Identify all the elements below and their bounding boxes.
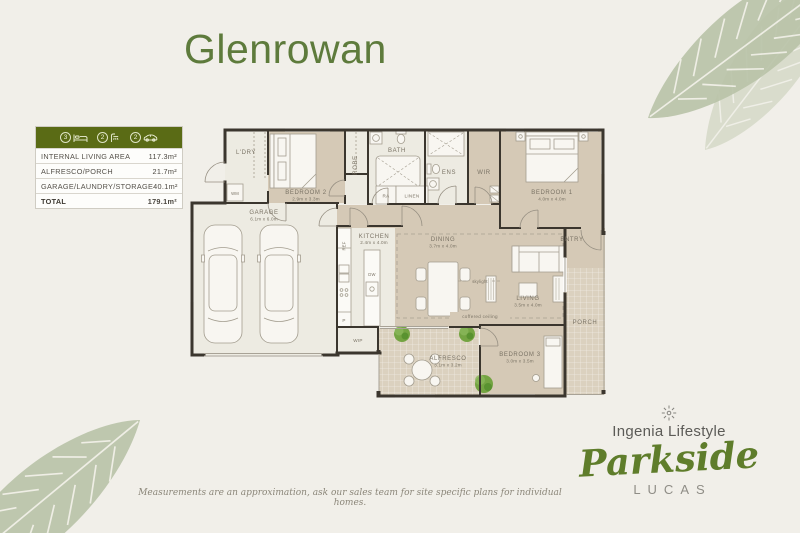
spec-value: 40.1m² bbox=[153, 182, 178, 191]
brand-community: Parkside bbox=[563, 435, 775, 485]
car-2 bbox=[258, 225, 301, 343]
label-bedroom3: BEDROOM 3 bbox=[499, 352, 540, 358]
dims-dining: 3.7m x 4.0m bbox=[429, 244, 456, 249]
shower-icon bbox=[110, 133, 121, 143]
label-entry: ENTRY bbox=[560, 237, 583, 243]
spec-value: 21.7m² bbox=[152, 167, 177, 176]
label-robe: ROBE bbox=[353, 155, 359, 174]
shower-count: 2 bbox=[97, 132, 108, 143]
dims-alfresco: 3.1m x 3.2m bbox=[434, 363, 461, 368]
label-ref: REF bbox=[342, 241, 347, 250]
bed-count: 3 bbox=[60, 132, 71, 143]
spec-row-alfresco-porch: ALFRESCO/PORCH 21.7m² bbox=[36, 163, 182, 178]
label-linen: LINEN bbox=[404, 194, 419, 199]
dims-bedroom3: 3.0m x 3.5m bbox=[506, 359, 533, 364]
page-title: Glenrowan bbox=[184, 26, 387, 73]
label-living: LIVING bbox=[516, 296, 539, 302]
label-ens: ENS bbox=[442, 170, 456, 176]
label-bedroom2: BEDROOM 2 bbox=[285, 190, 326, 196]
label-wm: WM bbox=[231, 191, 239, 196]
label-garage: GARAGE bbox=[249, 210, 278, 216]
plant-alfresco-right bbox=[459, 326, 475, 342]
spec-table: 3 2 2 bbox=[35, 126, 183, 209]
sofa bbox=[512, 246, 566, 272]
dims-kitchen: 2.4m x 4.0m bbox=[360, 240, 387, 245]
spec-label: GARAGE/LAUNDRY/STORAGE bbox=[41, 182, 153, 191]
spec-row-internal-living: INTERNAL LIVING AREA 117.3m² bbox=[36, 148, 182, 163]
spec-row-garage-laundry: GARAGE/LAUNDRY/STORAGE 40.1m² bbox=[36, 178, 182, 193]
kitchen-island bbox=[364, 250, 380, 326]
label-bath: BATH bbox=[388, 148, 406, 154]
spec-value: 117.3m² bbox=[149, 152, 177, 161]
label-porch: PORCH bbox=[573, 320, 598, 326]
dims-living: 3.5m x 4.0m bbox=[514, 303, 541, 308]
bed-bedroom2 bbox=[270, 134, 316, 188]
spec-row-total: TOTAL 179.1m² bbox=[36, 193, 182, 208]
dims-bedroom2: 2.9m x 3.3m bbox=[292, 197, 319, 202]
label-dw: DW bbox=[368, 272, 375, 277]
spec-value: 179.1m² bbox=[148, 197, 177, 206]
bed-icon bbox=[73, 133, 88, 143]
sun-icon bbox=[659, 404, 679, 422]
spec-label: TOTAL bbox=[41, 197, 66, 206]
bed-bedroom1 bbox=[516, 132, 588, 182]
label-wir: WIR bbox=[477, 170, 491, 176]
label-bedroom1: BEDROOM 1 bbox=[531, 190, 572, 196]
car-1 bbox=[202, 225, 245, 343]
dims-garage: 6.1m x 6.0m bbox=[250, 217, 277, 222]
label-pantry: P bbox=[342, 318, 345, 323]
spec-table-header: 3 2 2 bbox=[36, 127, 182, 148]
label-ra: RA bbox=[383, 194, 391, 199]
spec-label: ALFRESCO/PORCH bbox=[41, 167, 113, 176]
car-count: 2 bbox=[130, 132, 141, 143]
leaf-bottom-left bbox=[0, 394, 166, 533]
label-skylight: skylight bbox=[472, 279, 488, 284]
label-alfresco: ALFRESCO bbox=[429, 356, 466, 362]
feature-bathrooms: 2 bbox=[97, 132, 121, 143]
label-dining: DINING bbox=[431, 237, 456, 243]
plant-bedroom3 bbox=[475, 375, 493, 393]
disclaimer-text: Measurements are an approximation, ask o… bbox=[130, 488, 570, 508]
feature-beds: 3 bbox=[60, 132, 88, 143]
floorplan-brochure-page: { "page": { "title": "Glenrowan", "discl… bbox=[0, 0, 800, 533]
dims-bedroom1: 4.0m x 4.0m bbox=[538, 197, 565, 202]
label-wip: WIP bbox=[353, 338, 363, 343]
car-icon bbox=[143, 133, 158, 143]
feature-cars: 2 bbox=[130, 132, 158, 143]
label-laundry: L'DRY bbox=[236, 150, 256, 156]
brand-block: Ingenia Lifestyle Parkside LUCAS bbox=[564, 404, 774, 497]
spec-label: INTERNAL LIVING AREA bbox=[41, 152, 130, 161]
label-coffered-ceiling: coffered ceiling bbox=[462, 314, 498, 319]
leaf-top-right bbox=[624, 0, 800, 168]
floor-plan: L'DRY WM BEDROOM 2 2.9m x 3.3m ROBE BATH… bbox=[190, 122, 615, 407]
